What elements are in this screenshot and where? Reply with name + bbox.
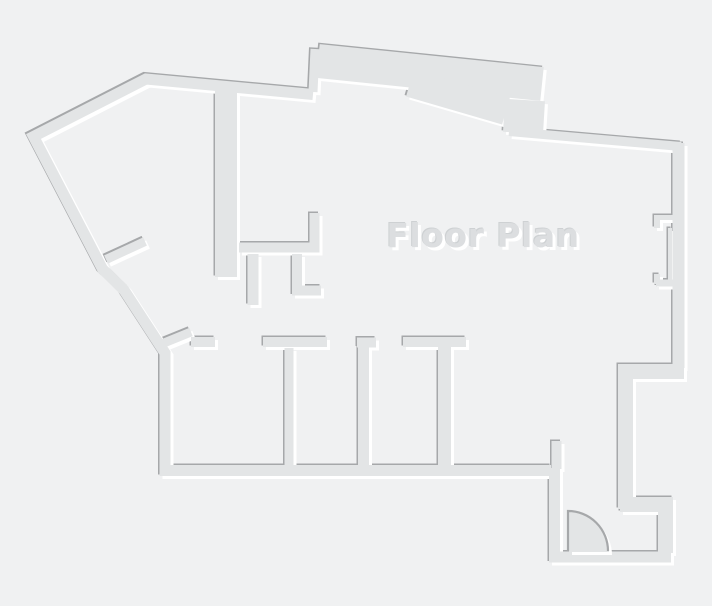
wall-segment [620,505,666,554]
floor-plan-canvas: Floor Plan Floor Plan Floor Plan [0,0,712,606]
diagonal-door-stub [105,240,149,263]
title-group: Floor Plan Floor Plan Floor Plan [385,215,582,258]
wall-layer [34,49,685,557]
wall-segment [313,49,315,92]
floor-plan-page: Floor Plan Floor Plan Floor Plan [0,0,712,606]
floor-plan-title: Floor Plan [386,216,579,255]
wall-segment [159,332,191,345]
wall-shadow-layer-segment [238,212,314,247]
door [568,511,612,555]
wall-highlight-layer-segment [629,375,688,513]
wall-segment [523,100,525,133]
